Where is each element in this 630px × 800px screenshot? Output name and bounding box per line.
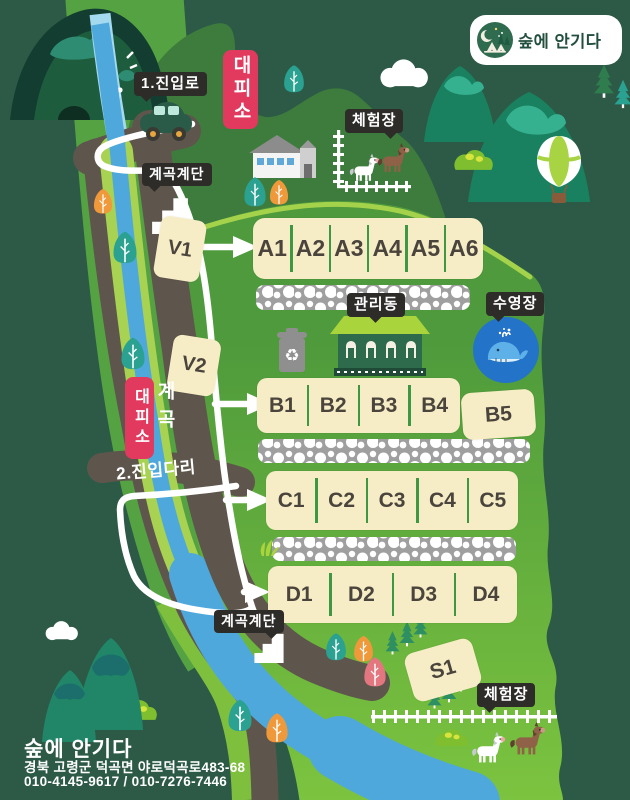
site-c4: C4: [417, 471, 467, 530]
label-stairs-bottom: 계곡계단: [214, 610, 284, 633]
site-a1: A1: [253, 218, 291, 279]
site-b2: B2: [308, 378, 359, 433]
site-a4: A4: [368, 218, 406, 279]
site-c5: C5: [468, 471, 518, 530]
site-d4: D4: [455, 566, 517, 623]
label-valley: 계곡: [151, 381, 178, 437]
site-row-b: B1 B2 B3 B4: [257, 378, 460, 433]
site-d3: D3: [393, 566, 455, 623]
management-building: [330, 316, 430, 376]
label-entrance-road: 1.진입로: [134, 72, 207, 96]
label-stairs-bottom-text: 계곡계단: [221, 613, 277, 629]
label-stairs-top-text: 계곡계단: [149, 166, 205, 182]
site-a3: A3: [330, 218, 368, 279]
logo: 숲에 안기다: [470, 15, 622, 65]
site-b4: B4: [409, 378, 460, 433]
site-b5: B5: [460, 389, 536, 441]
stone-band-b: [258, 439, 530, 463]
label-experience-top: 체험장: [345, 109, 403, 133]
site-a2: A2: [291, 218, 329, 279]
footer-phone: 010-4145-9617 / 010-7276-7446: [24, 774, 227, 789]
badge-shelter-top-text: 대피소: [227, 55, 254, 124]
svg-text:♻: ♻: [284, 346, 299, 366]
logo-title: 숲에 안기다: [518, 28, 601, 52]
site-row-d: D1 D2 D3 D4: [268, 566, 517, 623]
site-c3: C3: [367, 471, 417, 530]
stone-band-c: [272, 537, 516, 561]
label-experience-bottom: 체험장: [477, 683, 535, 707]
site-row-c: C1 C2 C3 C4 C5: [266, 471, 518, 530]
label-stairs-top: 계곡계단: [142, 163, 212, 186]
site-v1: V1: [152, 215, 207, 283]
logo-emblem-icon: [475, 20, 515, 60]
badge-shelter-top: 대피소: [223, 50, 258, 129]
badge-shelter-mid: 대피소: [125, 377, 154, 459]
site-d2: D2: [330, 566, 392, 623]
site-c2: C2: [316, 471, 366, 530]
pool: [473, 317, 539, 383]
site-c1: C1: [266, 471, 316, 530]
site-b3: B3: [359, 378, 410, 433]
campground-map: ♻: [0, 0, 630, 800]
badge-shelter-mid-text: 대피소: [128, 388, 152, 448]
label-pool: 수영장: [486, 292, 544, 316]
site-a5: A5: [406, 218, 444, 279]
footer-address: 경북 고령군 덕곡면 야로덕곡로483-68: [24, 756, 245, 776]
site-b1: B1: [257, 378, 308, 433]
recycle-bin: ♻: [277, 328, 307, 372]
label-entrance-road-text: 1.진입로: [141, 75, 200, 92]
site-a6: A6: [445, 218, 483, 279]
label-management: 관리동: [347, 293, 405, 317]
site-row-a: A1 A2 A3 A4 A5 A6: [253, 218, 483, 279]
